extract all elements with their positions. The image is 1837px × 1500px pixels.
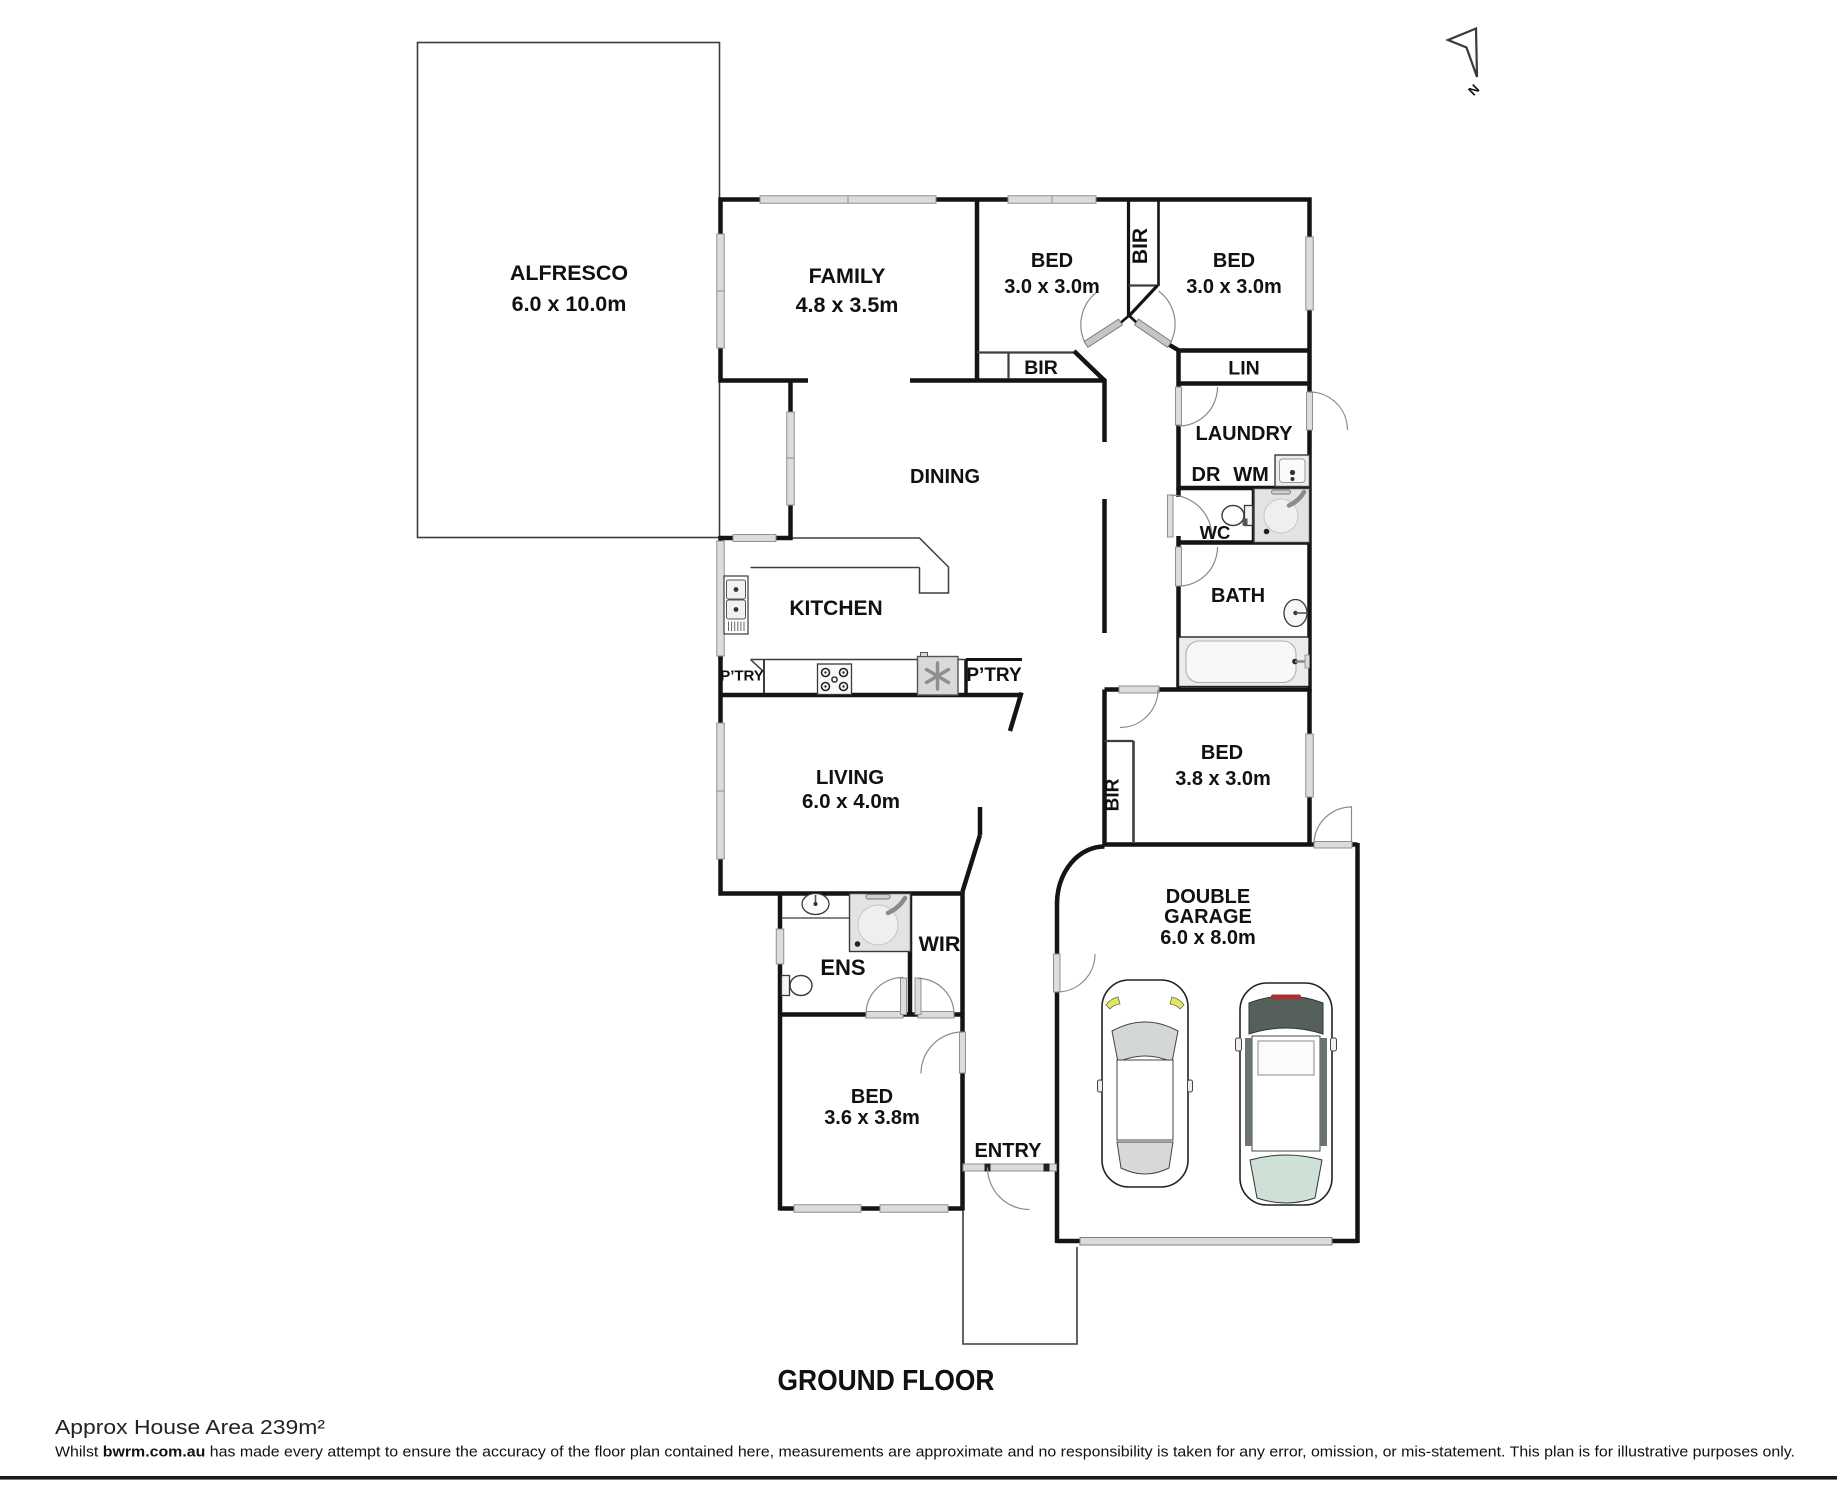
- svg-text:P’TRY: P’TRY: [720, 668, 764, 685]
- svg-text:3.0 x 3.0m: 3.0 x 3.0m: [1004, 276, 1100, 298]
- svg-text:BED: BED: [1201, 742, 1243, 764]
- svg-text:BED: BED: [1031, 250, 1073, 272]
- svg-text:BIR: BIR: [1024, 357, 1058, 379]
- svg-text:GARAGE: GARAGE: [1164, 906, 1252, 928]
- svg-text:BIR: BIR: [1103, 778, 1124, 811]
- svg-text:Whilst bwrm.com.au has made ev: Whilst bwrm.com.au has made every attemp…: [55, 1445, 1795, 1461]
- svg-text:3.8 x 3.0m: 3.8 x 3.0m: [1175, 768, 1271, 790]
- svg-text:BIR: BIR: [1129, 228, 1152, 264]
- svg-text:WC: WC: [1200, 522, 1231, 543]
- svg-text:4.8 x 3.5m: 4.8 x 3.5m: [796, 293, 899, 317]
- svg-text:6.0 x 10.0m: 6.0 x 10.0m: [512, 292, 627, 316]
- svg-text:3.0 x 3.0m: 3.0 x 3.0m: [1186, 276, 1282, 298]
- svg-text:GROUND FLOOR: GROUND FLOOR: [778, 1365, 995, 1397]
- svg-text:BATH: BATH: [1211, 585, 1265, 607]
- svg-text:LAUNDRY: LAUNDRY: [1195, 423, 1293, 445]
- svg-text:LIN: LIN: [1228, 358, 1259, 380]
- svg-text:BED: BED: [1213, 250, 1255, 272]
- svg-text:DOUBLE: DOUBLE: [1166, 886, 1250, 908]
- svg-text:Approx House Area 239m²: Approx House Area 239m²: [55, 1416, 325, 1439]
- svg-text:BED: BED: [851, 1086, 893, 1108]
- svg-text:3.6 x 3.8m: 3.6 x 3.8m: [824, 1107, 920, 1129]
- svg-text:KITCHEN: KITCHEN: [789, 597, 882, 620]
- svg-text:ENS: ENS: [820, 955, 865, 980]
- svg-text:6.0 x 8.0m: 6.0 x 8.0m: [1160, 927, 1256, 949]
- svg-text:WIR: WIR: [919, 932, 961, 956]
- svg-text:ALFRESCO: ALFRESCO: [510, 261, 628, 285]
- svg-text:FAMILY: FAMILY: [809, 264, 886, 288]
- svg-text:6.0 x 4.0m: 6.0 x 4.0m: [802, 790, 900, 813]
- svg-text:DINING: DINING: [910, 466, 980, 488]
- svg-text:WM: WM: [1233, 464, 1269, 486]
- svg-text:P’TRY: P’TRY: [966, 665, 1022, 686]
- svg-text:LIVING: LIVING: [816, 766, 884, 789]
- svg-text:ENTRY: ENTRY: [974, 1140, 1042, 1162]
- svg-text:DR: DR: [1192, 464, 1221, 486]
